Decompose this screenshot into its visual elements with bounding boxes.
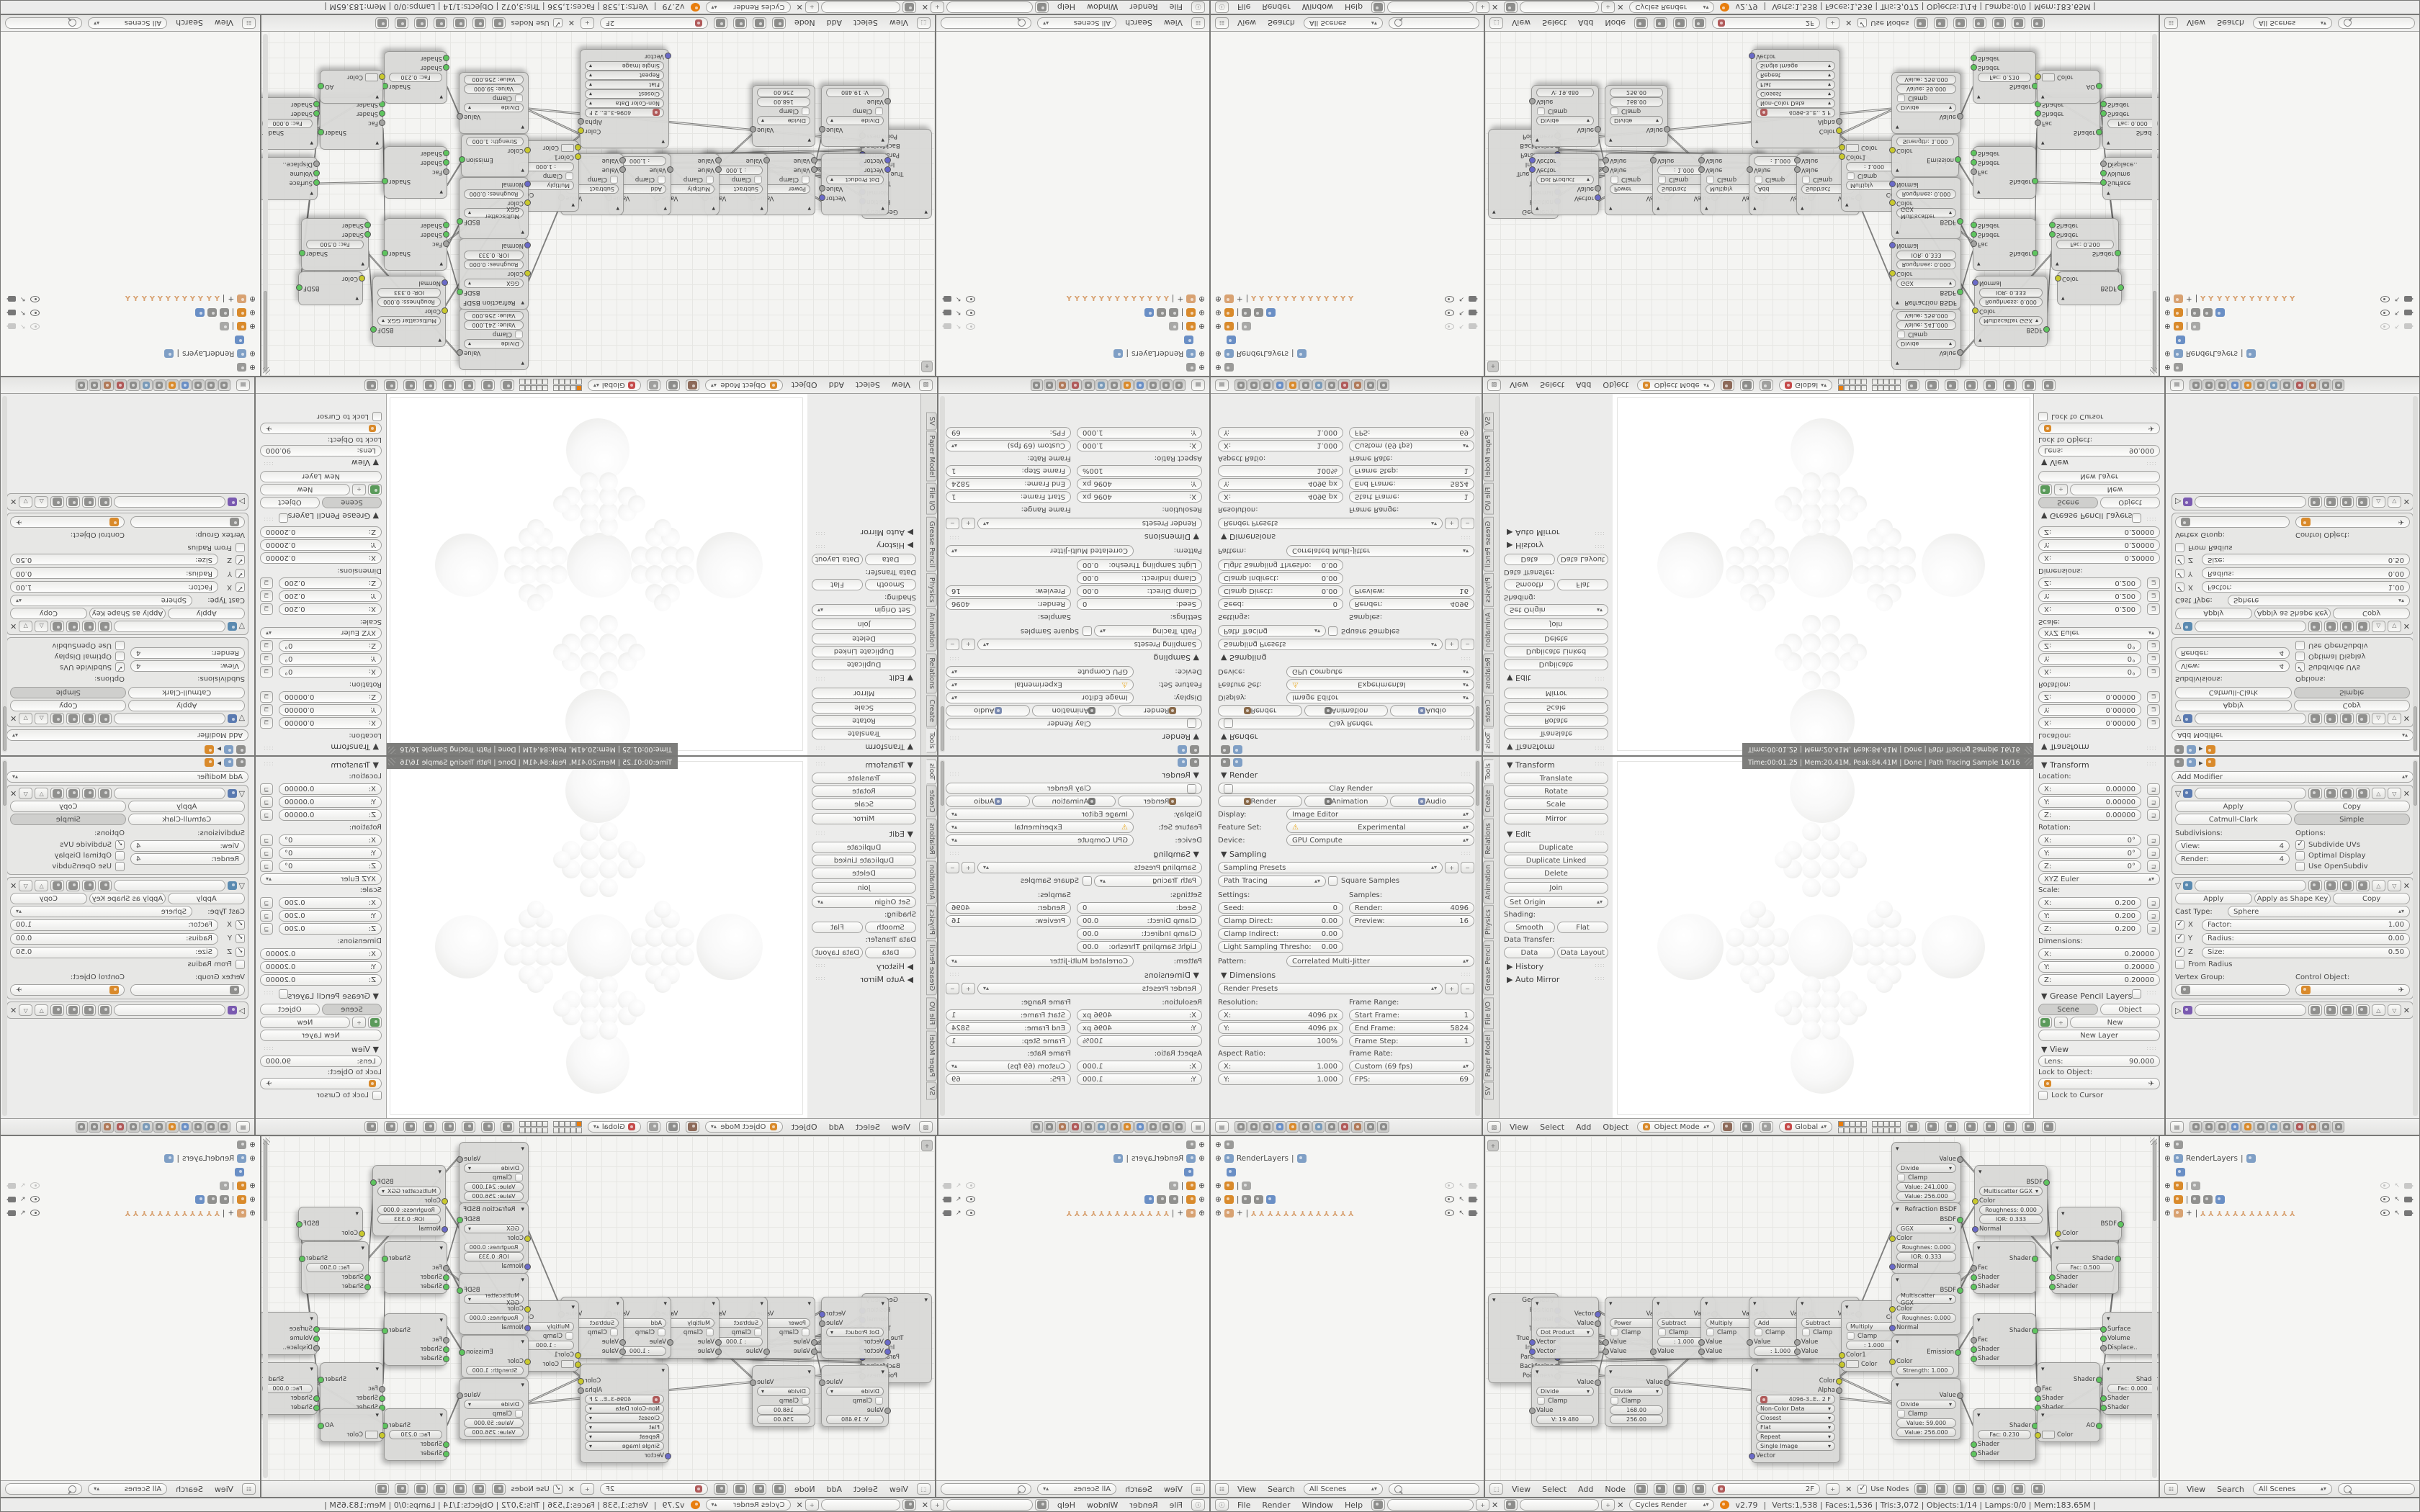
- tool-duplicate-linked-button[interactable]: Duplicate Linked: [1504, 855, 1608, 866]
- collapse-icon[interactable]: ▾: [881, 205, 884, 212]
- socket-vector[interactable]: [1529, 1339, 1536, 1346]
- node-number-field[interactable]: Value: 256.000: [464, 1428, 524, 1437]
- expand-icon[interactable]: ▽: [2175, 714, 2181, 724]
- node[interactable]: ▾ ValueDivide▾ClampValue: 59.000Value: 2…: [459, 1378, 529, 1440]
- expand-icon[interactable]: ⊕: [1198, 350, 1205, 359]
- np-dim-field[interactable]: X:0.20000: [2038, 948, 2160, 960]
- node-dropdown[interactable]: Closest▾: [585, 1413, 664, 1423]
- node[interactable]: ▾ ShaderFac: 0.230ShaderShader: [384, 1408, 447, 1461]
- viewport-canvas[interactable]: Time:00:01.25 | Mem:20.41M, Peak:84.41M …: [385, 393, 807, 755]
- restrict-toggles[interactable]: ↖: [1445, 1196, 1476, 1203]
- collapse-icon[interactable]: ▾: [439, 189, 443, 196]
- node-checkbox[interactable]: [802, 1397, 809, 1404]
- copy-button[interactable]: [395, 1483, 408, 1495]
- node-number-field[interactable]: Value: 256.000: [1896, 311, 1956, 320]
- location-field[interactable]: Y:0.00000: [279, 704, 382, 716]
- socket-value[interactable]: [819, 185, 825, 192]
- cast-apply-button[interactable]: Apply: [2175, 608, 2252, 619]
- eye-icon[interactable]: [30, 296, 40, 302]
- tab-constraints[interactable]: [153, 1121, 166, 1133]
- editor-type-button[interactable]: ⬚: [917, 17, 931, 29]
- node[interactable]: ▾ ValueDivide▾ClampValueV: 19.480: [1531, 1365, 1599, 1427]
- cursor-icon[interactable]: ↖: [956, 323, 962, 330]
- lock-toggle[interactable]: ⊒: [260, 640, 273, 652]
- scale-field[interactable]: X:0.200: [2038, 897, 2141, 909]
- node[interactable]: ▾ ShaderFac: 0.230ShaderShader: [384, 51, 447, 104]
- lock-to-cursor-row[interactable]: Lock to Cursor: [2038, 412, 2160, 421]
- node[interactable]: ▾ ShaderFacShaderShader: [384, 146, 447, 199]
- render-opengl-anim-button[interactable]: [403, 1121, 417, 1133]
- tab-physics[interactable]: [76, 379, 88, 391]
- scale-field[interactable]: X:0.200: [279, 897, 382, 909]
- sampling-field[interactable]: Clamp Direct:0.00: [1077, 585, 1202, 597]
- socket-shader[interactable]: [443, 1284, 449, 1290]
- socket-shader[interactable]: [261, 129, 261, 135]
- layer-toggle[interactable]: [537, 1128, 542, 1133]
- panel-np-view[interactable]: ▼ View::::: [2038, 456, 2160, 469]
- tab-object-data[interactable]: [1325, 1121, 1337, 1133]
- node-titlebar[interactable]: ▾: [2103, 188, 2159, 199]
- lock-toggle[interactable]: ⊒: [260, 717, 273, 729]
- node-dropdown[interactable]: Divide▾: [826, 116, 884, 125]
- rotation-field[interactable]: X:0°: [2038, 834, 2141, 846]
- tab-object-data[interactable]: [1083, 379, 1095, 391]
- camera-toggle[interactable]: [98, 496, 112, 508]
- scene-dropdown[interactable]: [902, 1, 916, 13]
- node-titlebar[interactable]: ▾: [1973, 186, 2035, 197]
- pencil-dropdown[interactable]: [2038, 484, 2052, 495]
- lock-to-object-field[interactable]: ✈: [260, 423, 382, 434]
- node-titlebar[interactable]: ▾: [385, 1315, 447, 1326]
- props-render-scrollbar[interactable]: [1475, 396, 1480, 752]
- tab-render-layers[interactable]: [1160, 379, 1173, 391]
- camera-toggle[interactable]: [2308, 1004, 2322, 1016]
- expand-icon[interactable]: ⊕: [249, 1140, 256, 1149]
- shelf-tab-tools[interactable]: Tools: [926, 728, 937, 753]
- socket-shader[interactable]: [261, 1377, 261, 1383]
- close-icon[interactable]: ✕: [797, 1500, 803, 1510]
- layer-toggle[interactable]: [1878, 386, 1883, 392]
- cursor-icon[interactable]: ↖: [956, 1210, 962, 1217]
- restrict-toggles[interactable]: ↖: [8, 296, 40, 303]
- subdiv-field[interactable]: Render:4: [2175, 853, 2290, 865]
- node-checkbox[interactable]: [1847, 1332, 1854, 1339]
- clay-render-button[interactable]: Clay Render: [1218, 718, 1474, 729]
- collapse-icon[interactable]: ▾: [807, 137, 811, 144]
- resolution-field[interactable]: 100%: [1077, 1035, 1202, 1047]
- node-number-field[interactable]: Roughnes: 0.000: [464, 189, 524, 199]
- add-modifier-dropdown[interactable]: Add Modifier▴▾: [2172, 771, 2414, 783]
- lock-toggle[interactable]: ⊒: [260, 923, 273, 935]
- axis-checkbox-row[interactable]: Y: [220, 569, 245, 578]
- checkbox[interactable]: [2175, 543, 2184, 552]
- expand-icon[interactable]: ⊕: [1215, 1195, 1222, 1204]
- cursor-icon[interactable]: ↖: [956, 1196, 962, 1203]
- copy-button[interactable]: Copy: [2294, 801, 2411, 812]
- menu-viewport-object[interactable]: Object: [789, 1122, 820, 1132]
- menu-outliner-view[interactable]: View: [1161, 1485, 1186, 1494]
- resolution-field[interactable]: Y:4096 px: [1218, 478, 1343, 490]
- sampling-field[interactable]: Seed:0: [1218, 902, 1343, 914]
- node-checkbox[interactable]: [1610, 1328, 1618, 1336]
- tool-translate-button[interactable]: Translate: [1504, 773, 1608, 784]
- outliner-row-scene[interactable]: ⊕: [936, 1138, 1209, 1151]
- socket-value[interactable]: [1529, 98, 1536, 104]
- tab-constraints[interactable]: [1299, 1121, 1312, 1133]
- action-render-button[interactable]: Render: [1218, 796, 1302, 807]
- radio-toggle[interactable]: [1224, 719, 1233, 729]
- collapse-icon[interactable]: ▾: [310, 1315, 313, 1323]
- add-preset-button[interactable]: +: [962, 639, 975, 650]
- menu-outliner-search[interactable]: Search: [173, 19, 206, 28]
- node-number-field[interactable]: Value: 256.000: [464, 1192, 524, 1201]
- node-dropdown[interactable]: Repeat▾: [585, 1432, 664, 1441]
- eye-icon[interactable]: [30, 1182, 40, 1189]
- color-swatch[interactable]: [561, 144, 574, 152]
- from-radius-row[interactable]: From Radius: [10, 543, 245, 552]
- eye-toggle[interactable]: [82, 788, 96, 799]
- fake-user-button[interactable]: F: [606, 18, 610, 29]
- node-titlebar[interactable]: ▾: [753, 1367, 815, 1377]
- node-titlebar[interactable]: ▾: [2058, 293, 2121, 304]
- eye-icon[interactable]: [2380, 323, 2390, 330]
- tab-render-camera[interactable]: [1173, 1121, 1186, 1133]
- sampling-field[interactable]: Clamp Direct:0.00: [1218, 585, 1343, 597]
- node-checkbox[interactable]: [1897, 94, 1904, 102]
- tab-world[interactable]: [179, 1121, 192, 1133]
- outliner-row-object-a[interactable]: ⊕|↖: [1, 320, 260, 333]
- layer-toggle[interactable]: [576, 379, 582, 385]
- texture-type-toggle[interactable]: [733, 1483, 747, 1495]
- edit-mode-toggle[interactable]: [2340, 788, 2354, 799]
- layer-toggle[interactable]: [559, 386, 565, 392]
- layer-toggle[interactable]: [1872, 1121, 1878, 1127]
- eye-toggle[interactable]: [82, 496, 96, 508]
- node[interactable]: ▾ ShaderFacShaderShader: [384, 1241, 447, 1294]
- tool-scale-button[interactable]: Scale: [812, 798, 916, 810]
- tab-constraints[interactable]: [153, 379, 166, 391]
- node-checkbox[interactable]: [1706, 176, 1713, 183]
- collapse-icon[interactable]: ▾: [439, 1245, 443, 1252]
- node-dropdown[interactable]: Multiscatter GGX▾: [377, 1187, 441, 1196]
- layer-toggle[interactable]: [1861, 379, 1867, 385]
- render-engine-dropdown[interactable]: Cycles Render▴▾: [706, 1499, 791, 1511]
- node-number-field[interactable]: Value: 59.000: [1896, 84, 1956, 94]
- np-dim-field[interactable]: Z:0.20000: [260, 974, 382, 986]
- node-titlebar[interactable]: ▾: [321, 1410, 382, 1421]
- option-row[interactable]: Subdivide UVs: [2295, 840, 2410, 850]
- add-preset-button[interactable]: +: [1445, 639, 1458, 650]
- node-number-field[interactable]: IOR: 0.333: [1896, 1252, 1956, 1261]
- menu-info-window[interactable]: Window: [1084, 1500, 1121, 1510]
- outliner-row-world[interactable]: [1, 333, 260, 347]
- tab-scene[interactable]: [192, 1121, 205, 1133]
- render-opengl-anim-button[interactable]: [403, 379, 417, 391]
- tab-world[interactable]: [2228, 379, 2241, 391]
- control-object-field[interactable]: ✈: [2295, 516, 2410, 528]
- feature set-dropdown[interactable]: ⚠Experimental▴▾: [946, 679, 1134, 690]
- location-field[interactable]: Z:0.00000: [2038, 809, 2141, 821]
- node-number-field[interactable]: V: 19.480: [1536, 88, 1594, 97]
- node-titlebar[interactable]: ▾: [1532, 135, 1598, 145]
- collapse-icon[interactable]: ▾: [924, 209, 928, 216]
- close-icon[interactable]: ✕: [10, 881, 17, 891]
- modifier-name-field[interactable]: [2195, 621, 2305, 632]
- socket-value[interactable]: [1957, 113, 1963, 120]
- move-up-button[interactable]: △: [35, 880, 48, 891]
- lock-button[interactable]: [1906, 379, 1919, 391]
- menu-node-select[interactable]: Select: [1539, 19, 1569, 28]
- panel-shelf-transform[interactable]: ▼ Transform::::: [1504, 758, 1608, 771]
- node[interactable]: ▾ ShaderFac: 0.500ShaderShader: [301, 1241, 369, 1294]
- node-number-field[interactable]: Value: 59.000: [464, 84, 524, 94]
- np-dim-field[interactable]: X:0.20000: [260, 948, 382, 960]
- socket-shader[interactable]: [2115, 1256, 2121, 1262]
- shelf-tab-grease-pencil[interactable]: Grease Pencil: [926, 517, 937, 572]
- outliner-scope-dropdown[interactable]: All Scenes▴▾: [1037, 17, 1116, 29]
- node-titlebar[interactable]: ▾: [261, 188, 317, 199]
- layer-toggle[interactable]: [1855, 386, 1861, 392]
- editor-type-button[interactable]: ▤: [1215, 1121, 1229, 1133]
- eye-icon[interactable]: [30, 1196, 40, 1202]
- np-dim-field[interactable]: X:0.20000: [2038, 552, 2160, 564]
- collapse-icon[interactable]: ▾: [712, 1300, 715, 1308]
- node-number-field[interactable]: Value: 241.000: [464, 1182, 524, 1192]
- orientation-dropdown[interactable]: Global▴▾: [588, 1121, 641, 1133]
- layer-toggle[interactable]: [1850, 386, 1855, 392]
- tab-object-data[interactable]: [1325, 379, 1337, 391]
- scene-field[interactable]: [821, 1499, 900, 1511]
- lock-toggle[interactable]: ⊒: [2147, 910, 2160, 922]
- outliner-row-world[interactable]: [936, 333, 1209, 347]
- socket-vector[interactable]: [1529, 1349, 1536, 1355]
- resolution-field[interactable]: X:4096 px: [1077, 491, 1202, 503]
- use-nodes-row[interactable]: Use Nodes: [511, 19, 563, 28]
- shelf-tab-grease-pencil[interactable]: Grease Pencil: [926, 940, 937, 995]
- restrict-toggles[interactable]: ↖: [944, 310, 975, 317]
- cursor-icon[interactable]: ↖: [956, 310, 962, 317]
- socket-value[interactable]: [457, 1156, 463, 1163]
- subdiv-field[interactable]: View:4: [130, 840, 245, 852]
- subsurf-type-simple[interactable]: Simple: [10, 687, 127, 698]
- socket-value[interactable]: [1595, 1380, 1601, 1386]
- panel-history[interactable]: ▶ History::::: [812, 539, 916, 552]
- layer-toggle[interactable]: [576, 1121, 582, 1127]
- socket-emission[interactable]: [1955, 1349, 1961, 1356]
- panel-sampling[interactable]: ▼ Sampling::::: [1218, 847, 1474, 860]
- tab-particles[interactable]: [2319, 379, 2331, 391]
- node[interactable]: ▾ ShaderFac: 0.500ShaderShader: [301, 218, 369, 271]
- socket-shader[interactable]: [364, 1284, 371, 1290]
- outliner-search-field[interactable]: [1389, 17, 1479, 29]
- expand-icon[interactable]: ▽: [239, 714, 245, 724]
- node-dropdown[interactable]: Divide▾: [1896, 339, 1956, 348]
- vertex-group-toggle[interactable]: [50, 621, 64, 632]
- shelf-tab-animation[interactable]: Animation: [926, 860, 937, 904]
- node-dropdown[interactable]: Multiscatter GGX▾: [377, 316, 441, 325]
- move-down-button[interactable]: ▽: [19, 496, 32, 508]
- layer-toggle[interactable]: [1889, 1121, 1895, 1127]
- node-dropdown[interactable]: Multiscatter GGX▾: [464, 1295, 524, 1304]
- edit-mode-toggle[interactable]: [2340, 880, 2354, 891]
- edit-mode-toggle[interactable]: [66, 621, 80, 632]
- expand-icon[interactable]: ⊕: [1215, 295, 1222, 304]
- socket-fac[interactable]: [379, 120, 385, 126]
- node-titlebar[interactable]: ▾: [753, 135, 815, 145]
- node-number-field[interactable]: Fac: 0.500: [306, 1263, 364, 1272]
- viewer-border-button[interactable]: [453, 17, 467, 29]
- collapse-icon[interactable]: ▾: [807, 1300, 811, 1308]
- lock-toggle[interactable]: ⊒: [2147, 796, 2160, 808]
- vertex-group-toggle[interactable]: [50, 880, 64, 891]
- outliner-search-field[interactable]: [2338, 17, 2415, 29]
- camera-icon[interactable]: [1469, 297, 1476, 302]
- layer-toggle[interactable]: [1889, 1128, 1895, 1133]
- socket-value[interactable]: [1698, 1349, 1705, 1355]
- tool-join-button[interactable]: Join: [1504, 882, 1608, 894]
- device-dropdown[interactable]: GPU Compute▴▾: [1286, 834, 1474, 846]
- node-checkbox[interactable]: [1658, 1328, 1665, 1336]
- feature set-dropdown[interactable]: ⚠Experimental▴▾: [946, 822, 1134, 833]
- socket-value[interactable]: [1595, 185, 1601, 192]
- restrict-toggles[interactable]: ↖: [944, 1210, 975, 1217]
- frame-field[interactable]: End Frame:5824: [946, 1022, 1071, 1034]
- eye-icon[interactable]: [30, 310, 40, 316]
- camera-toggle[interactable]: [98, 713, 112, 724]
- node[interactable]: ▾ ShaderFac: 0.000ShaderShader: [261, 1362, 318, 1415]
- node-checkbox[interactable]: [1754, 1328, 1762, 1336]
- node[interactable]: ▾ ColorAlpha4096-3..E.. 2 FNon-Color Dat…: [1751, 1364, 1840, 1463]
- props-render-scrollbar[interactable]: [940, 760, 945, 1116]
- socket-vector[interactable]: [1749, 53, 1755, 59]
- action-audio-button[interactable]: Audio: [1390, 796, 1474, 807]
- gp-checkbox[interactable]: [2132, 513, 2141, 523]
- socket-normal[interactable]: [524, 1264, 531, 1270]
- expand-icon[interactable]: ⊕: [249, 350, 256, 359]
- menu-viewport-add[interactable]: Add: [826, 1122, 847, 1132]
- outliner-row-scene[interactable]: ⊕: [1211, 361, 1484, 374]
- node-titlebar[interactable]: ▾: [385, 1410, 447, 1421]
- tool-duplicate-button[interactable]: Duplicate: [1504, 842, 1608, 853]
- tool-join-button[interactable]: Join: [1504, 618, 1608, 630]
- socket-value[interactable]: [1603, 157, 1609, 163]
- move-up-button[interactable]: △: [35, 1004, 48, 1016]
- node[interactable]: ▾ ShaderFacShaderShader: [1973, 218, 2036, 271]
- move-down-button[interactable]: ▽: [2388, 621, 2401, 632]
- tool-delete-button[interactable]: Delete: [812, 633, 916, 644]
- socket-fac[interactable]: [1971, 240, 1977, 247]
- node-number-field[interactable]: IOR: 0.333: [1979, 1215, 2043, 1224]
- menu-viewport-view[interactable]: View: [889, 1122, 913, 1132]
- layer-toggle[interactable]: [1895, 386, 1901, 392]
- socket-shader[interactable]: [382, 178, 388, 184]
- tab-particles[interactable]: [1044, 1121, 1056, 1133]
- resolution-field[interactable]: Y:4096 px: [1077, 478, 1202, 490]
- socket-displace-[interactable]: [313, 161, 320, 167]
- tab-object-data[interactable]: [127, 379, 140, 391]
- vertex-group-toggle[interactable]: [2356, 713, 2370, 724]
- restrict-toggles[interactable]: ↖: [1445, 1182, 1476, 1189]
- shading-flat-button[interactable]: Flat: [812, 579, 863, 590]
- node-number-field[interactable]: IOR: 0.333: [464, 1252, 524, 1261]
- editor-type-button[interactable]: ▤: [1191, 1121, 1205, 1133]
- socket-shader[interactable]: [379, 110, 385, 117]
- socket-color[interactable]: [524, 199, 531, 206]
- socket-value[interactable]: [763, 1349, 770, 1355]
- socket-shader[interactable]: [1971, 55, 1977, 61]
- parent-node-tree-button[interactable]: [1934, 17, 1948, 29]
- eye-toggle[interactable]: [82, 880, 96, 891]
- sampling-presets-dropdown[interactable]: Sampling Presets▴▾: [1218, 862, 1443, 873]
- editor-type-button[interactable]: ☷: [1191, 1483, 1205, 1495]
- sampling-field[interactable]: Clamp Indirect:0.00: [1218, 572, 1343, 584]
- panel-np-transform[interactable]: ▼ Transform::::: [2038, 741, 2160, 754]
- socket-shader[interactable]: [2096, 129, 2102, 135]
- socket-fac[interactable]: [443, 168, 449, 175]
- tab-particles[interactable]: [89, 1121, 101, 1133]
- socket-shader[interactable]: [382, 1328, 388, 1334]
- node-number-field[interactable]: Fac: 0.230: [389, 73, 442, 82]
- apply-button[interactable]: Apply: [2175, 700, 2292, 711]
- outliner-row-object-b[interactable]: ⊕|↖: [1, 1192, 260, 1206]
- axis-checkbox-row[interactable]: X: [220, 920, 245, 930]
- node-titlebar[interactable]: ▾: [1973, 91, 2035, 102]
- restrict-toggles[interactable]: ↖: [8, 1182, 40, 1189]
- outliner-row-object-b[interactable]: ⊕|↖: [1, 306, 260, 320]
- gp-new-button[interactable]: New: [2070, 1017, 2160, 1028]
- editor-type-button[interactable]: ▤: [1191, 379, 1205, 391]
- socket-shader[interactable]: [2032, 1256, 2038, 1262]
- option-row[interactable]: Subdivide UVs: [2295, 662, 2410, 672]
- expand-icon[interactable]: ▷: [239, 498, 245, 507]
- node-number-field[interactable]: V: 19.480: [826, 88, 884, 97]
- socket-shader[interactable]: [2049, 222, 2056, 228]
- add-layout-button[interactable]: +: [931, 1, 944, 13]
- socket-value[interactable]: [715, 157, 722, 163]
- tab-object[interactable]: [1121, 1121, 1134, 1133]
- unlink-icon[interactable]: ✕: [568, 1485, 575, 1494]
- socket-color[interactable]: [379, 1432, 385, 1439]
- render-opengl-still-button[interactable]: [1984, 379, 1997, 391]
- collapse-icon[interactable]: ▾: [881, 1369, 884, 1376]
- pivot-dropdown[interactable]: [666, 1121, 680, 1133]
- axis-checkbox[interactable]: [236, 948, 245, 957]
- scale-field[interactable]: X:0.200: [279, 603, 382, 615]
- eye-toggle[interactable]: [2324, 713, 2338, 724]
- shelf-tab-paper-model[interactable]: Paper Model: [926, 431, 937, 482]
- node-number-field[interactable]: Value: 59.000: [464, 1418, 524, 1428]
- radio-toggle[interactable]: [1187, 784, 1196, 793]
- node-titlebar[interactable]: ▾: [1532, 1367, 1598, 1377]
- modifier-name-field[interactable]: [114, 788, 225, 799]
- shelf-tab-paper-model[interactable]: Paper Model: [1483, 431, 1494, 482]
- rotation-field[interactable]: Y:0°: [2038, 847, 2141, 859]
- node[interactable]: ▾ EmissionColorStrength: 1.000: [461, 1335, 529, 1378]
- eye-icon[interactable]: [1445, 296, 1454, 302]
- mode-dropdown[interactable]: Object Mode▴▾: [1637, 379, 1715, 391]
- node-dropdown[interactable]: Dot Product▾: [826, 1328, 884, 1337]
- node[interactable]: ▾ BSDFMultiscatter GGX▾ColorRoughnes: 0.…: [459, 177, 529, 239]
- socket-shader[interactable]: [1971, 150, 1977, 156]
- layer-toggle[interactable]: [531, 1128, 537, 1133]
- node-titlebar[interactable]: ▾: [2103, 138, 2159, 148]
- shelf-tab-create[interactable]: Create: [926, 786, 937, 817]
- node-checkbox[interactable]: [1658, 176, 1665, 183]
- expand-icon[interactable]: ▽: [2175, 789, 2181, 798]
- region-expand-plus[interactable]: +: [921, 361, 933, 372]
- outliner-row-renderlayers[interactable]: ⊕RenderLayers|: [2160, 347, 2419, 361]
- node-titlebar[interactable]: ▾: [373, 335, 445, 346]
